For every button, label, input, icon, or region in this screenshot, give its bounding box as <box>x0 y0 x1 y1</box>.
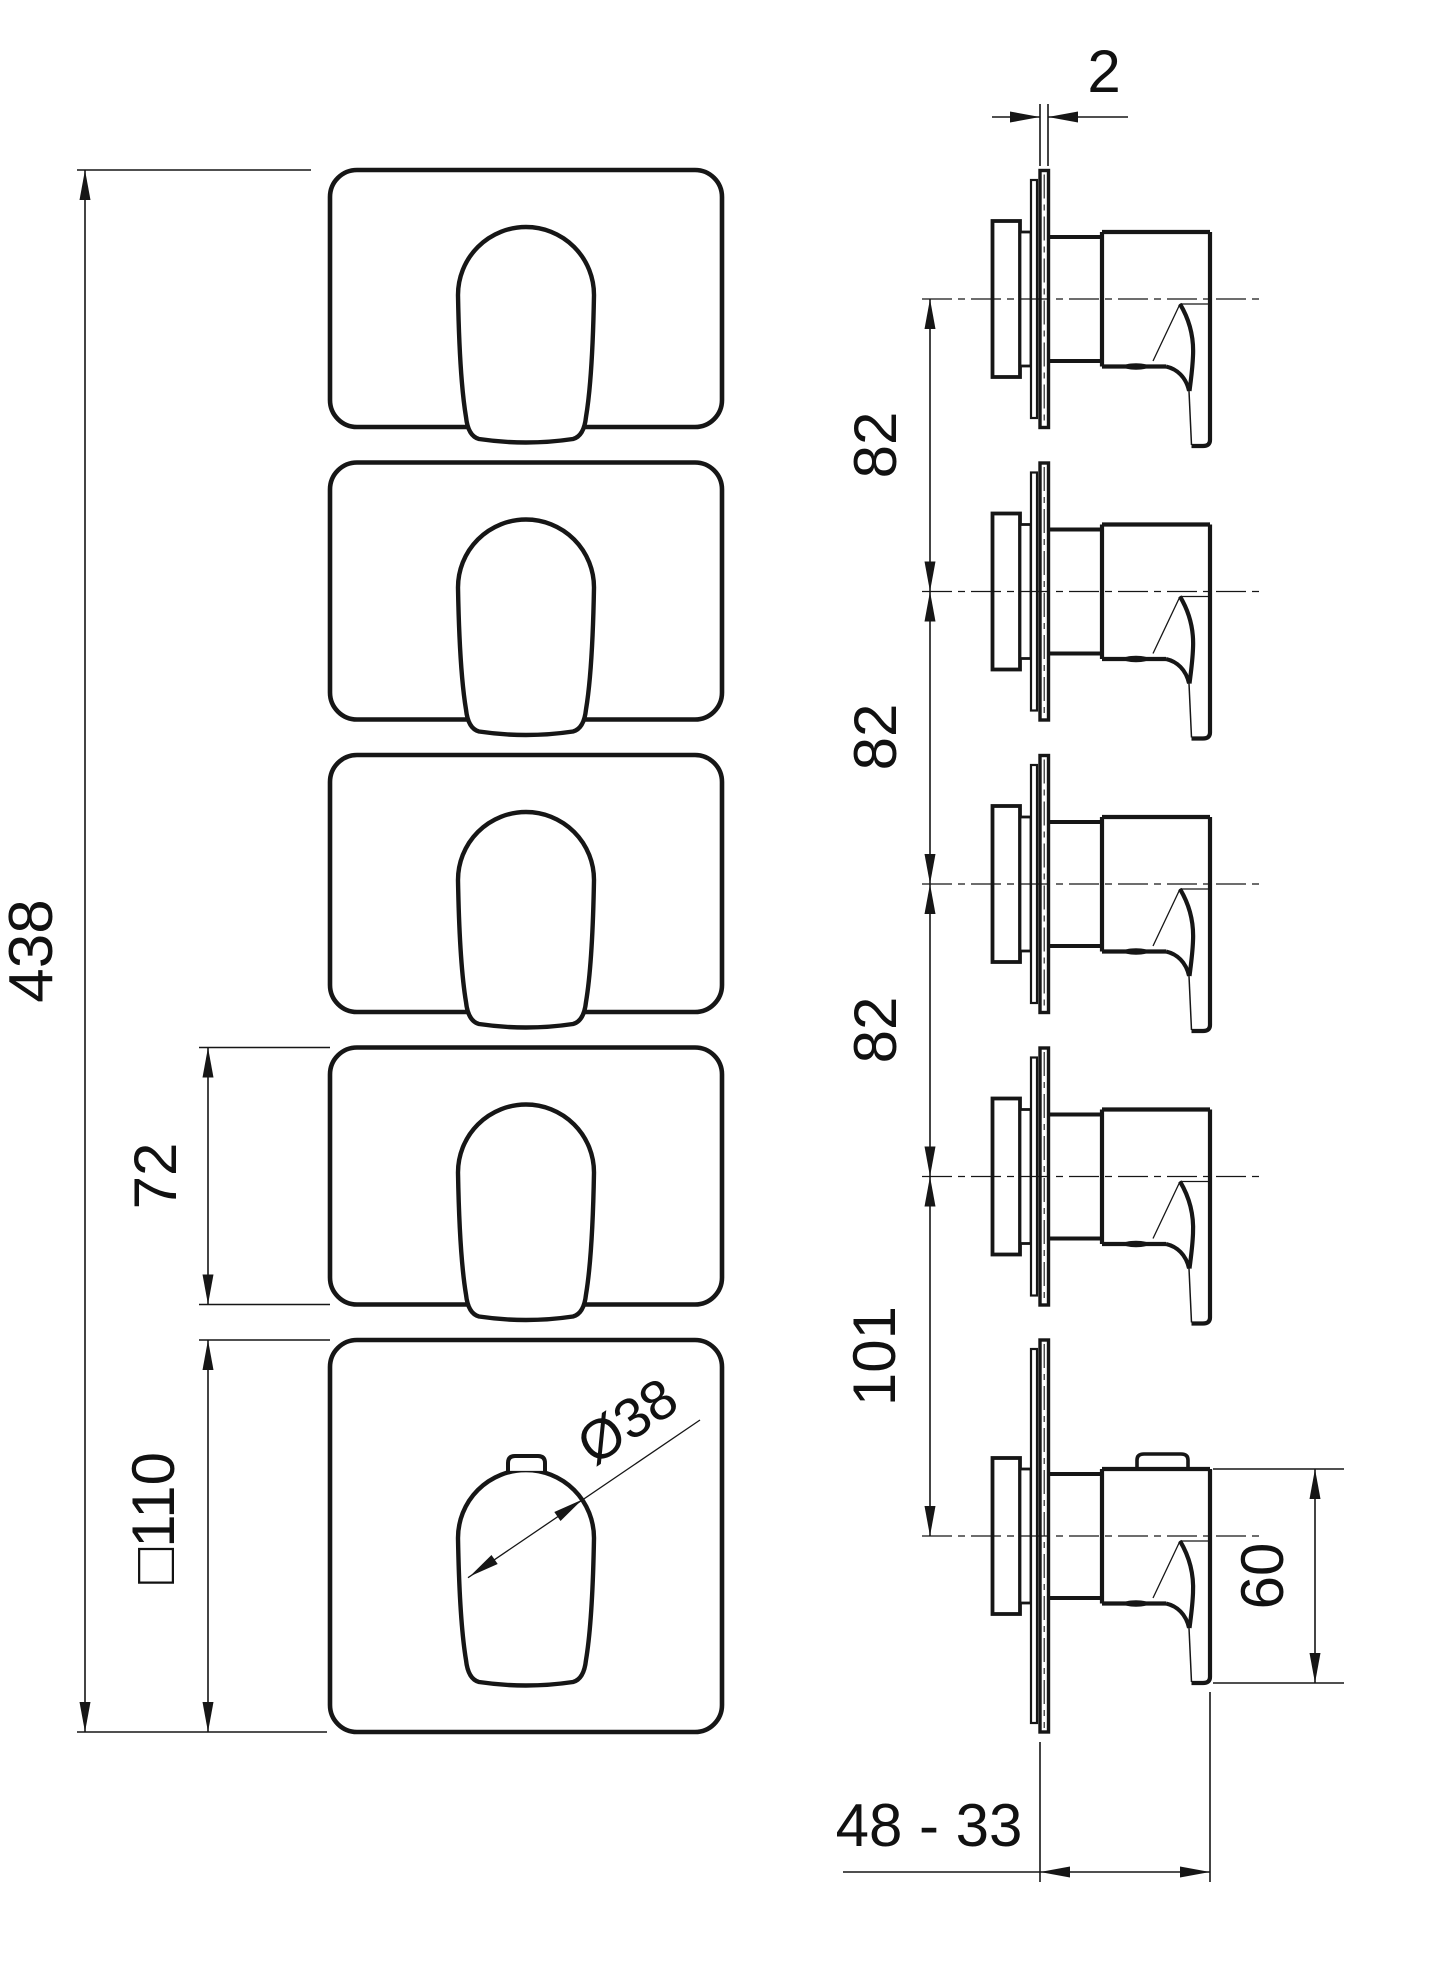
label-depth-range: 48 - 33 <box>836 1792 1023 1859</box>
label-plate-height: 72 <box>122 1143 189 1210</box>
thermostat-handle-tab <box>508 1456 545 1472</box>
set-screw-detail <box>1123 656 1149 662</box>
front-handle-3 <box>458 812 594 1028</box>
label-square-plate: □110 <box>120 1452 187 1584</box>
set-screw-detail <box>1123 1241 1149 1247</box>
front-handle-1 <box>458 227 594 443</box>
set-screw-detail <box>1123 363 1149 369</box>
front-view-details <box>506 1456 547 1472</box>
label-spacing-thermostat: 101 <box>841 1306 908 1406</box>
label-plate-thickness: 2 <box>1087 38 1120 105</box>
set-screw-detail <box>1123 948 1149 954</box>
label-handle-length: 60 <box>1229 1543 1296 1610</box>
technical-drawing: 438 72 □110 Ø38 2 82 82 82 101 60 48 - 3… <box>0 0 1439 1963</box>
set-screw-detail <box>1123 1600 1149 1606</box>
front-handle-2 <box>458 520 594 736</box>
label-spacing-2: 82 <box>842 704 909 771</box>
label-spacing-3: 82 <box>842 997 909 1064</box>
label-overall-height: 438 <box>0 899 66 1002</box>
drawing-sheet: 438 72 □110 Ø38 2 82 82 82 101 60 48 - 3… <box>0 0 1439 1963</box>
front-handle-5 <box>458 1470 594 1686</box>
front-handle-4 <box>458 1105 594 1321</box>
label-spacing-1: 82 <box>842 412 909 479</box>
